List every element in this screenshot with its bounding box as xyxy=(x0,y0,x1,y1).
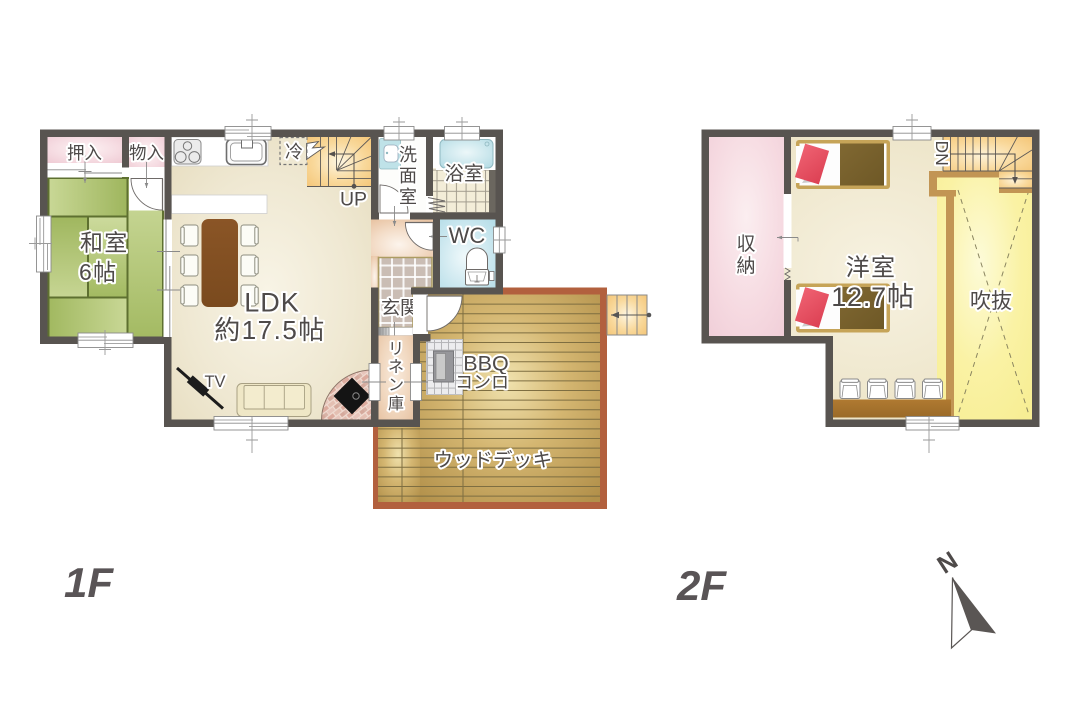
svg-text:物入: 物入 xyxy=(129,143,164,163)
svg-text:6帖: 6帖 xyxy=(79,259,117,285)
svg-text:冷: 冷 xyxy=(285,142,303,162)
svg-text:リ: リ xyxy=(388,341,404,358)
svg-text:約17.5帖: 約17.5帖 xyxy=(214,315,326,345)
svg-text:吹抜: 吹抜 xyxy=(970,290,1012,313)
svg-text:LDK: LDK xyxy=(244,288,300,318)
svg-text:納: 納 xyxy=(736,255,755,277)
svg-text:和室: 和室 xyxy=(80,230,129,256)
svg-text:2F: 2F xyxy=(676,562,727,609)
svg-text:ン: ン xyxy=(388,377,404,394)
svg-text:コンロ: コンロ xyxy=(455,373,509,393)
svg-text:押入: 押入 xyxy=(67,143,102,163)
svg-text:12.7帖: 12.7帖 xyxy=(831,282,915,312)
svg-text:DN: DN xyxy=(932,141,952,166)
svg-text:1F: 1F xyxy=(64,559,114,606)
svg-text:面: 面 xyxy=(399,166,417,186)
svg-text:室: 室 xyxy=(399,187,417,207)
svg-text:洗: 洗 xyxy=(399,145,417,165)
svg-text:UP: UP xyxy=(340,189,367,211)
svg-text:WC: WC xyxy=(449,223,486,248)
svg-text:浴室: 浴室 xyxy=(444,163,483,185)
svg-text:庫: 庫 xyxy=(388,395,404,413)
svg-text:収: 収 xyxy=(736,233,755,255)
svg-text:洋室: 洋室 xyxy=(846,255,896,282)
svg-text:TV: TV xyxy=(204,373,225,391)
svg-text:ネ: ネ xyxy=(388,358,404,376)
svg-text:ウッドデッキ: ウッドデッキ xyxy=(434,450,553,472)
